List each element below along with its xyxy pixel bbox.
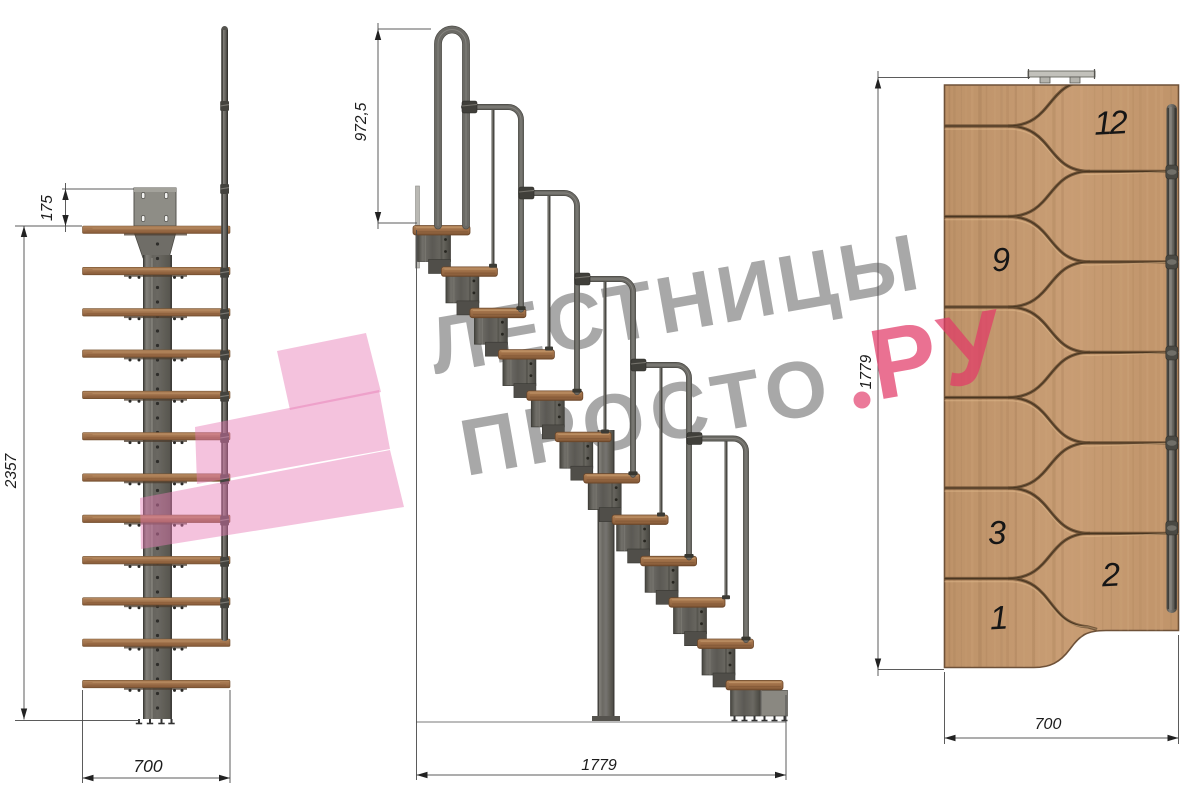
svg-text:972,5: 972,5 [353, 102, 370, 141]
svg-text:РУ: РУ [861, 287, 1016, 421]
svg-text:700: 700 [133, 756, 162, 776]
svg-text:1779: 1779 [581, 757, 617, 774]
svg-text:700: 700 [1035, 716, 1062, 733]
svg-text:12: 12 [1093, 103, 1128, 142]
svg-text:175: 175 [39, 195, 56, 221]
svg-text:2357: 2357 [3, 452, 20, 489]
svg-text:1: 1 [989, 599, 1007, 637]
